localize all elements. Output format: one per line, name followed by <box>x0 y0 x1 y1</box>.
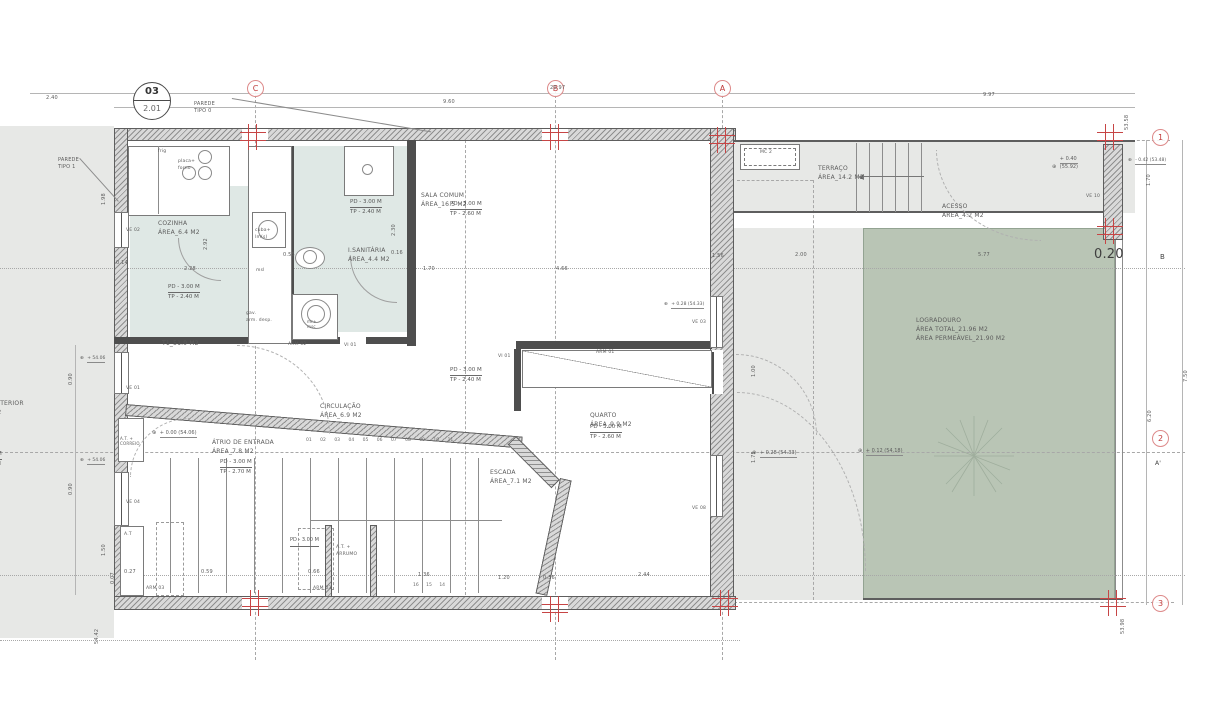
dim-156: 1.56 <box>712 253 724 260</box>
room-label-circulacao: CIRCULAÇÃOÁREA_6.9 M2 <box>320 386 362 421</box>
dim-5358: 53.58 <box>1124 115 1131 130</box>
dim-036: 0.36 <box>543 575 555 582</box>
dim-line-top2 <box>114 107 1135 108</box>
label-gav-arm: gav.arm. desp. <box>246 298 272 324</box>
grid-bubble-3: 3 <box>1152 595 1169 612</box>
stair-landing-line <box>310 520 502 521</box>
dim-line-right1 <box>1146 140 1147 605</box>
hob-burner-2 <box>198 166 212 180</box>
dim-right-170: 1.70 <box>1146 174 1153 186</box>
window-ve08 <box>710 455 723 517</box>
tag-at-correio: A.T. +CORREIO <box>120 424 140 447</box>
dim-090-a: 0.90 <box>68 373 75 385</box>
access-stair-arrow-line <box>864 176 924 177</box>
acesso-top-line <box>734 140 1135 142</box>
level-patio-1: ⊕ + 0.28 (54.33) <box>752 450 797 456</box>
tag-ve10: VE 10 <box>1086 194 1100 201</box>
level-target-icon: ⊕ <box>1052 164 1056 170</box>
door-arc-circulacao <box>237 345 330 434</box>
label-msl: msl <box>256 268 265 275</box>
room-label-acesso: ACESSOÁREA_4.2 M2 <box>942 186 984 221</box>
exterior-area <box>0 126 114 638</box>
dim-170: 1.70 <box>423 266 435 273</box>
grid-bubble-a: A <box>714 80 731 97</box>
pd-tp-atrio: PD - 3.00 MTP - 2.70 M <box>220 458 252 477</box>
section-marker-top-b <box>542 124 568 150</box>
tag-ve01: VE 01 <box>126 386 140 393</box>
wall-tag-tipo0: PAREDETIPO 0 <box>194 86 215 130</box>
wall-bottom <box>114 596 736 610</box>
shower-drain <box>362 164 373 175</box>
dim-007: 0.07 <box>110 572 117 584</box>
dim-090-b: 0.90 <box>68 483 75 495</box>
garden-right-wall-a <box>1115 240 1116 600</box>
dim-175: 1.75 <box>751 451 758 463</box>
dim-2097: 20.97 <box>550 85 565 92</box>
pd-tp-cozinha: PD - 3.00 MTP - 2.40 M <box>168 283 200 302</box>
detail-sheet: 2.01 <box>134 101 170 117</box>
dim-027: 0.27 <box>124 569 136 576</box>
room-label-terraco: TERRAÇOÁREA_14.2 M2 <box>818 148 864 183</box>
dim-997: 9.97 <box>983 92 995 99</box>
section-marker-bottom-c <box>242 590 268 616</box>
tag-arm02: ARM 02 <box>288 342 306 349</box>
dim-066: 0.66 <box>308 569 320 576</box>
dim-750: 7.50 <box>1183 370 1190 382</box>
tag-arm01: ARM 01 <box>596 350 614 357</box>
dim-136: 1.36 <box>418 572 430 579</box>
room-label-exterior: EXTERIORM2 <box>0 383 24 418</box>
dim-577: 5.77 <box>978 252 990 259</box>
tag-ve04: VE 04 <box>126 500 140 507</box>
section-marker-tr-1 <box>1097 124 1123 150</box>
level-exterior-b: ⊕ + 54.06 <box>80 458 105 463</box>
dim-059: 0.59 <box>201 569 213 576</box>
detail-marker: 03 2.01 <box>133 82 171 120</box>
level-target-icon: ⊕ <box>664 302 668 307</box>
garden-right-wall-b <box>1122 240 1123 600</box>
plant-icon <box>930 412 1018 500</box>
label-mc: MC 2 <box>760 150 772 157</box>
wall-circ-quarto <box>514 349 521 411</box>
access-stair-treads <box>856 143 928 212</box>
pd-tp-isanitaria: PD - 3.00 MTP - 2.40 M <box>350 198 382 217</box>
window-ve04 <box>114 472 129 526</box>
grid-bubble-c: C <box>247 80 264 97</box>
section-marker-top-c <box>240 124 266 150</box>
wall-tag-tipo1: PAREDETIPO 1 <box>58 142 79 186</box>
unit-label: T1_51.9 M2 <box>162 340 199 349</box>
garden-bottom-line <box>863 598 1123 600</box>
room-label-escada: ESCADAÁREA_7.1 M2 <box>490 452 532 487</box>
door-leaf-quarto <box>712 352 714 394</box>
level-target-icon: ⊕ <box>80 356 84 361</box>
dim-055: 0.55 <box>283 252 295 259</box>
room-label-cozinha: COZINHAÁREA_6.4 M2 <box>158 203 200 238</box>
level-quarto: ⊕ + 0.28 (54.33) <box>664 302 704 307</box>
tag-arm03-b: ARM 03 <box>313 586 331 593</box>
label-placa-forno: placa+forno <box>178 146 195 172</box>
wall-bath-sala <box>407 140 416 346</box>
section-marker-top-a <box>709 127 735 153</box>
level-patio-2: ⊕ + 0.12 (54.18) <box>858 448 903 454</box>
dim-244: 2.44 <box>638 572 650 579</box>
tag-vi01-a: VI 01 <box>344 343 357 350</box>
dim-5398: 53.98 <box>1120 619 1127 634</box>
pd-tp-quarto: PD - 3.00 MTP - 2.60 M <box>590 423 622 442</box>
level-atrio: ⊕ + 0.00 (54.06) <box>152 430 197 436</box>
grid-bubble-2: 2 <box>1152 430 1169 447</box>
tag-vi01-b: VI 01 <box>498 354 511 361</box>
dim-016: 0.16 <box>391 250 403 257</box>
dim-228: 2.28 <box>184 266 196 273</box>
section-marker-bottom-b <box>542 596 568 622</box>
level-exterior-a: ⊕ + 54.06 <box>80 356 105 361</box>
toilet-tank <box>303 250 317 264</box>
level-terraco: ⊕ + 0.40(55.92) <box>1052 156 1078 170</box>
dim-020-big: 0.20 <box>1094 246 1124 265</box>
dim-014: 0.14 <box>116 260 128 267</box>
level-target-icon: ⊕ <box>152 430 156 436</box>
wall-kitchen-bottom-b <box>366 337 416 344</box>
tag-at-arrumo: A.T. +ARRUMO <box>336 532 357 558</box>
tag-at: A.T <box>124 532 132 539</box>
tag-ve03: VE 03 <box>692 320 706 327</box>
tag-pd-arrumo: PD - 3.00 M <box>290 537 319 547</box>
dash-line-lower <box>0 640 740 641</box>
floor-plan-canvas: C B A 1 2 3 B A' 03 2.01 PAREDETIPO 0 PA… <box>0 0 1209 720</box>
grid-bubble-1: 1 <box>1152 129 1169 146</box>
level-right-outside: ⊕ - 0.42 (53.48) <box>1128 158 1166 163</box>
hob-burner-1 <box>198 150 212 164</box>
dim-230: 2.30 <box>391 224 398 236</box>
stair-numbers-lower: 16 15 14 <box>413 583 445 588</box>
detail-number: 03 <box>134 83 170 101</box>
tag-ve08: VE 08 <box>692 506 706 513</box>
dim-120: 1.20 <box>498 575 510 582</box>
stair-numbers-upper: 01 02 03 04 05 06 07 08 09 10 11 <box>306 438 453 443</box>
label-frig: frig <box>158 149 166 156</box>
terrace-gap-strip <box>734 213 1135 228</box>
section-label-b: B <box>1160 252 1165 262</box>
section-marker-bottom-a <box>712 590 738 616</box>
room-label-atrio: ÁTRIO DE ENTRADAÁREA_7.8 M2 <box>212 422 274 457</box>
dash-line-terrace <box>737 180 813 181</box>
section-line-b <box>0 268 1185 269</box>
dim-292: 2.92 <box>203 238 210 250</box>
level-target-icon: ⊕ <box>1128 158 1132 163</box>
pd-tp-circulacao: PD - 3.00 MTP - 2.40 M <box>450 366 482 385</box>
section-marker-tr-2 <box>1097 218 1123 244</box>
dim-620: 6.20 <box>1147 410 1154 422</box>
dim-240: 2.40 <box>46 95 58 102</box>
dim-466: 4.66 <box>556 266 568 273</box>
level-target-icon: ⊕ <box>858 448 862 454</box>
room-label-logradouro: LOGRADOUROÁREA TOTAL_21.96 M2ÁREA PERMEÁ… <box>916 300 1005 343</box>
room-label-isanitaria: I.SANITÁRIAÁREA_4.4 M2 <box>348 230 390 265</box>
pd-tp-sala: PD - 3.00 MTP - 2.60 M <box>450 200 482 219</box>
dim-150: 1.50 <box>101 544 108 556</box>
section-label-a-prime: A' <box>1155 460 1161 469</box>
dim-5442: 54.42 <box>94 629 101 644</box>
arm01-closet <box>522 350 712 388</box>
wall-quarto-top <box>516 341 712 349</box>
pd-tp-exterior: PD - 3.00 MTP - 2.70 M <box>0 450 2 469</box>
label-washing-machine: mr+msc <box>307 307 317 330</box>
dim-100: 1.00 <box>751 365 758 377</box>
dim-198: 1.98 <box>101 193 108 205</box>
tag-arm03-a: ARM 03 <box>146 586 164 593</box>
level-target-icon: ⊕ <box>80 458 84 463</box>
dim-960: 9.60 <box>443 99 455 106</box>
dim-200: 2.00 <box>795 252 807 259</box>
window-ve03 <box>710 296 723 348</box>
tag-ve02: VE 02 <box>126 228 140 235</box>
section-marker-bottom-right <box>1100 590 1126 616</box>
label-cuba: cuba+lm(s) <box>255 215 271 241</box>
main-stair-treads <box>170 458 502 593</box>
